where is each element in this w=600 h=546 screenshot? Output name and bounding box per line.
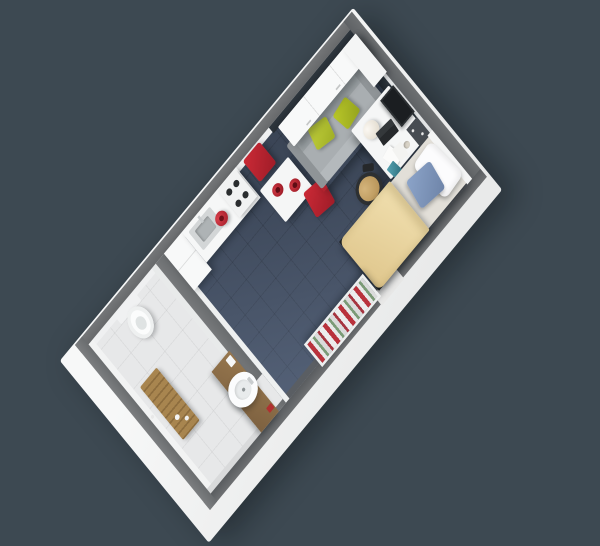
floorplan-render bbox=[0, 0, 600, 546]
desk-chair-backrest bbox=[363, 163, 374, 172]
apartment-scene bbox=[75, 12, 487, 510]
